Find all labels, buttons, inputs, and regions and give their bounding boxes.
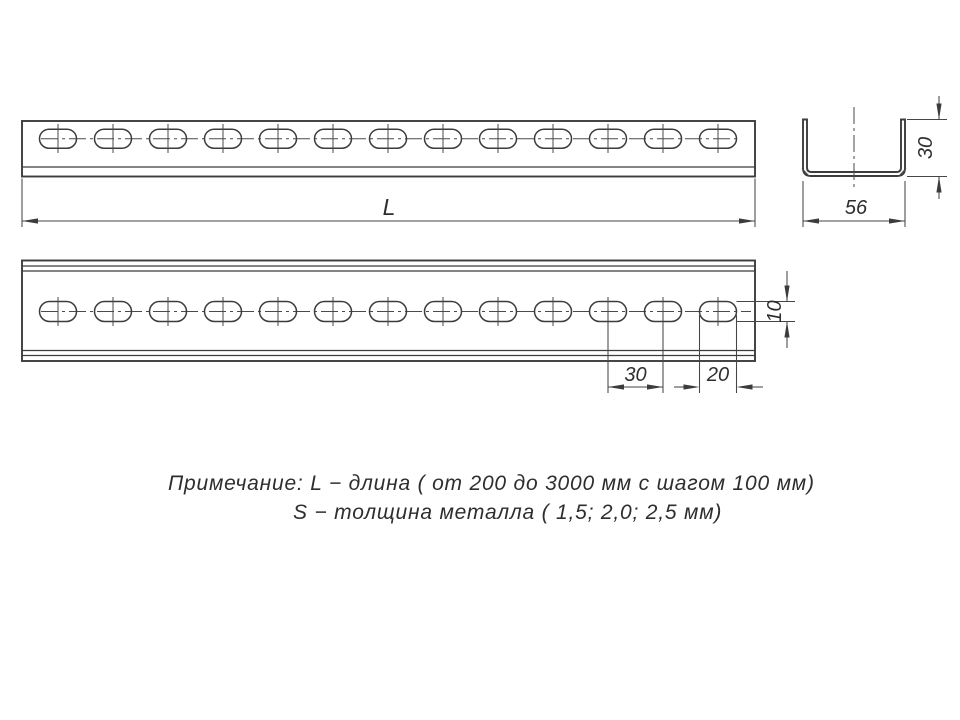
dimension-section-width: 56 xyxy=(803,181,905,227)
drawing-canvas: L 10 xyxy=(0,0,960,720)
dimension-label-slot-length: 20 xyxy=(706,364,729,386)
note-line-2: S − толщина металла ( 1,5; 2,0; 2,5 мм) xyxy=(293,501,722,525)
arrowhead-right-icon xyxy=(647,384,663,389)
note-line-1: Примечание: L − длина ( от 200 до 3000 м… xyxy=(168,472,815,496)
dimension-label-slot-width: 10 xyxy=(764,300,786,322)
arrowhead-down-icon xyxy=(784,286,789,302)
dimension-section-height: 30 xyxy=(907,96,947,199)
arrowhead-left-icon xyxy=(22,218,38,223)
technical-drawing: L 10 xyxy=(0,0,960,720)
dimension-label-section-height: 30 xyxy=(915,137,937,159)
dimension-slot-pitch-length: 30 20 xyxy=(608,312,763,393)
arrowhead-left-icon xyxy=(608,384,624,389)
arrowhead-right-icon xyxy=(739,218,755,223)
dimension-label-section-width: 56 xyxy=(845,197,868,219)
section-view: 30 56 xyxy=(802,96,947,227)
arrowhead-up-icon xyxy=(784,322,789,338)
dimension-label-slot-pitch: 30 xyxy=(624,364,646,386)
dimension-label-length: L xyxy=(383,194,396,220)
arrowhead-left-icon xyxy=(803,218,819,223)
arrowhead-right-icon xyxy=(684,384,700,389)
arrowhead-right-icon xyxy=(889,218,905,223)
arrowhead-up-icon xyxy=(936,177,941,193)
plan-view: 10 30 20 xyxy=(22,261,795,394)
arrowhead-left-icon xyxy=(737,384,753,389)
dimension-length: L xyxy=(22,179,755,228)
dimension-slot-width: 10 xyxy=(737,271,796,348)
side-view: L xyxy=(22,121,755,227)
arrowhead-down-icon xyxy=(936,104,941,120)
